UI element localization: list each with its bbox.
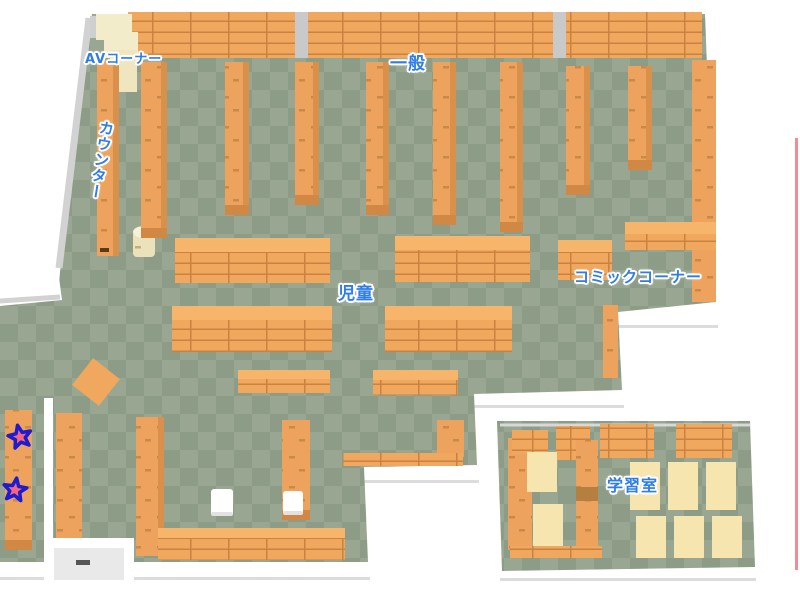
partition-wall — [44, 398, 53, 562]
study-table — [527, 452, 557, 492]
study-desk — [636, 516, 666, 558]
study-desk — [674, 516, 704, 558]
bookshelf — [566, 66, 590, 195]
bookshelf — [225, 62, 249, 215]
bottom-wall-shelf — [343, 453, 463, 466]
study-desk — [668, 462, 698, 510]
shelf — [600, 424, 654, 458]
bookshelf — [56, 413, 82, 553]
study-desk — [712, 516, 742, 558]
reading-table — [238, 370, 330, 393]
library-map: AVコーナー 一般 カウンター 児童 コミックコーナー 学習室 — [0, 0, 800, 600]
label-children: 児童 — [338, 286, 374, 303]
label-av-corner: AVコーナー — [85, 53, 162, 66]
label-general: 一般 — [390, 56, 426, 73]
wall-pillar — [295, 12, 308, 58]
shelf — [512, 430, 548, 454]
bookshelf — [141, 62, 167, 238]
bookshelf — [500, 62, 523, 232]
reading-table — [373, 370, 458, 395]
entrance — [44, 538, 134, 590]
bookshelf — [366, 62, 389, 215]
label-study-room: 学習室 — [607, 478, 658, 494]
floor-plan-canvas — [0, 0, 800, 600]
study-desk — [706, 462, 736, 510]
top-wall-shelves — [128, 12, 702, 58]
label-comic-corner: コミックコーナー — [574, 270, 702, 285]
wall-pillar — [553, 12, 566, 58]
low-shelf-block — [385, 306, 512, 352]
stool — [211, 489, 233, 516]
bookshelf — [295, 62, 319, 205]
divider-shelf — [576, 440, 598, 548]
low-shelf-block — [395, 236, 530, 282]
study-table — [533, 504, 563, 548]
adjacent-map-edge-line — [795, 138, 798, 570]
bookshelf — [628, 66, 652, 170]
bookshelf — [433, 62, 456, 225]
shelf — [510, 546, 602, 558]
low-shelf-block — [172, 306, 332, 352]
low-shelf-block — [175, 238, 330, 283]
bookshelf — [437, 420, 464, 457]
stool — [283, 491, 303, 515]
bottom-wall-shelf — [158, 528, 345, 560]
shelf — [676, 424, 732, 458]
